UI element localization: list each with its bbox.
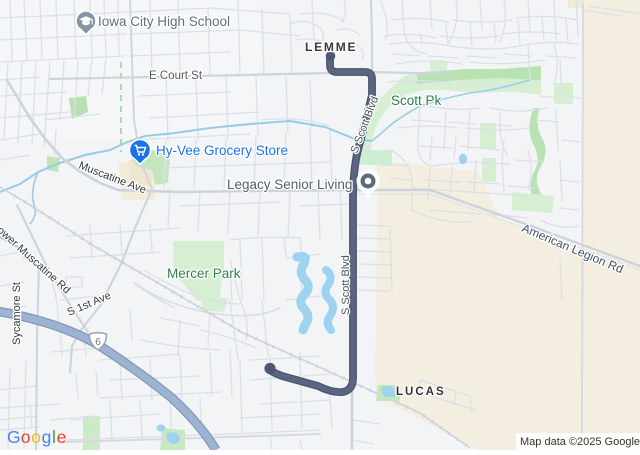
svg-text:Map data ©2025 Google: Map data ©2025 Google [520, 436, 640, 448]
svg-text:Mercer Park: Mercer Park [167, 266, 241, 281]
svg-text:Scott Pk: Scott Pk [391, 93, 442, 108]
svg-text:6: 6 [95, 336, 101, 348]
svg-text:S Scott Blvd: S Scott Blvd [340, 255, 352, 315]
svg-text:Sycamore St: Sycamore St [11, 282, 23, 345]
svg-text:LUCAS: LUCAS [396, 386, 446, 398]
svg-text:E Court St: E Court St [149, 70, 203, 82]
svg-text:Hy-Vee Grocery Store: Hy-Vee Grocery Store [156, 143, 288, 158]
svg-text:Legacy Senior Living: Legacy Senior Living [227, 177, 352, 192]
svg-text:g: g [42, 427, 52, 447]
svg-text:e: e [57, 427, 67, 447]
svg-text:Iowa City High School: Iowa City High School [98, 14, 230, 29]
svg-text:LEMME: LEMME [305, 40, 357, 54]
svg-text:o: o [31, 427, 41, 447]
svg-text:G: G [7, 427, 21, 447]
svg-text:l: l [52, 427, 56, 447]
svg-text:o: o [21, 427, 31, 447]
